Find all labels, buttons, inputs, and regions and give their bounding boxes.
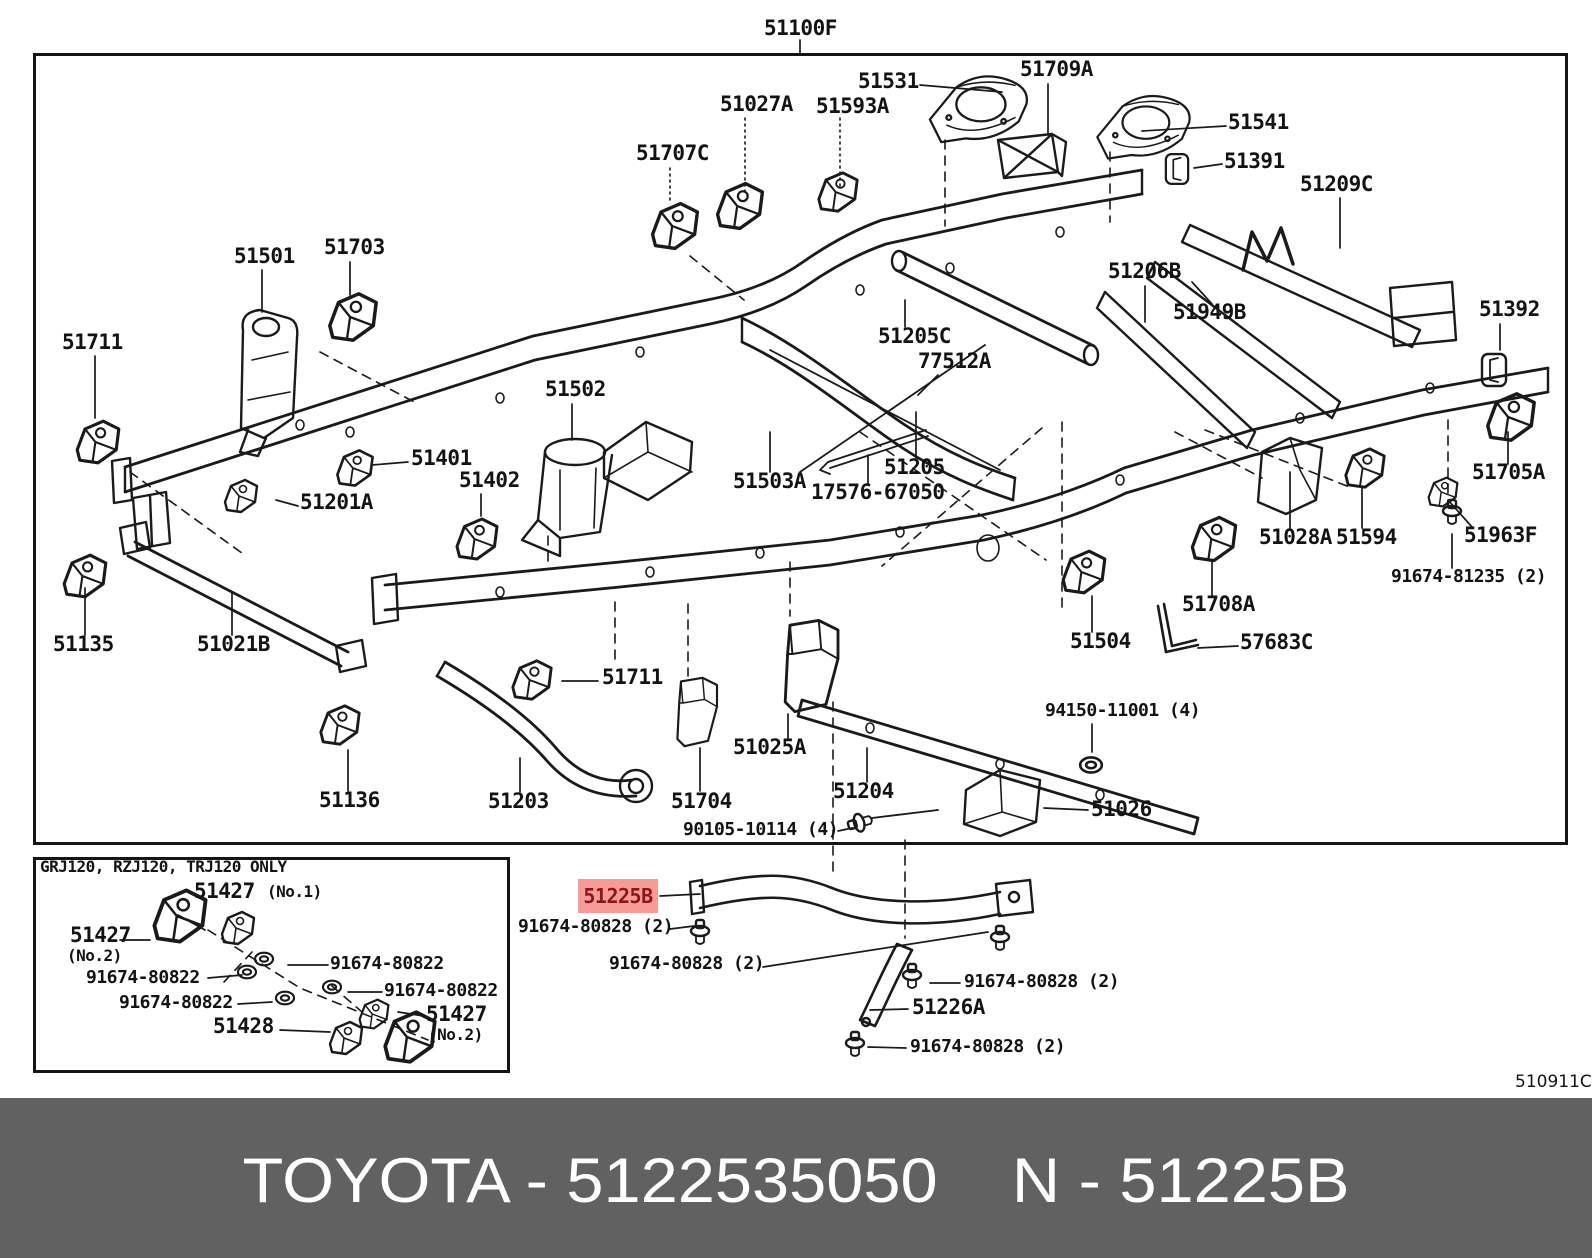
part-label-51136: 51136	[319, 790, 380, 811]
part-label-77512a: 77512A	[918, 351, 991, 372]
part-label-90105-10114-4: 90105-10114 (4)	[683, 821, 838, 839]
part-label-51504: 51504	[1070, 631, 1131, 652]
part-label-17576-67050: 17576-67050	[811, 482, 945, 503]
part-label-51705a: 51705A	[1472, 462, 1545, 483]
part-label-51593a: 51593A	[816, 96, 889, 117]
part-label-51402: 51402	[459, 470, 520, 491]
part-label-51703: 51703	[324, 237, 385, 258]
part-label-51021b: 51021B	[197, 634, 270, 655]
part-label-51027a: 51027A	[720, 94, 793, 115]
part-label-91674-80822: 91674-80822	[119, 994, 233, 1012]
part-label-51428: 51428	[213, 1016, 274, 1037]
part-label-51209c: 51209C	[1300, 174, 1373, 195]
part-label-51100f: 51100F	[764, 18, 837, 39]
part-label-51709a: 51709A	[1020, 59, 1093, 80]
part-label-51401: 51401	[411, 448, 472, 469]
highlighted-part-label: 51225B	[578, 879, 658, 913]
part-label-51427: 51427	[426, 1004, 487, 1025]
part-label-51205c: 51205C	[878, 326, 951, 347]
part-label-51594: 51594	[1336, 527, 1397, 548]
part-label-no-2: (No.2)	[67, 948, 122, 964]
footer-banner: TOYOTA - 5122535050 N - 51225B	[0, 1098, 1592, 1258]
part-label-91674-80822: 91674-80822	[330, 955, 444, 973]
part-label-no-2: (No.2)	[428, 1027, 483, 1043]
part-label-51203: 51203	[488, 791, 549, 812]
part-label-57683c: 57683C	[1240, 632, 1313, 653]
part-label-510911c: 510911C	[1515, 1074, 1592, 1091]
part-label-51531: 51531	[858, 71, 919, 92]
part-label-91674-80828-2: 91674-80828 (2)	[518, 918, 673, 936]
parts-diagram-page: 51225B 51100F5153151709A51027A51593A5170…	[0, 0, 1592, 1258]
part-label-51963f: 51963F	[1464, 525, 1537, 546]
part-label-51501: 51501	[234, 246, 295, 267]
part-label-51026: 51026	[1091, 799, 1152, 820]
part-label-51707c: 51707C	[636, 143, 709, 164]
part-label-91674-80822: 91674-80822	[384, 982, 498, 1000]
part-label-51711: 51711	[62, 332, 123, 353]
part-label-51949b: 51949B	[1173, 302, 1246, 323]
part-label-91674-80828-2: 91674-80828 (2)	[910, 1038, 1065, 1056]
banner-text: TOYOTA - 5122535050 N - 51225B	[243, 1146, 1350, 1216]
part-label-grj120-rzj120-trj120-only: GRJ120, RZJ120, TRJ120 ONLY	[40, 859, 287, 875]
part-label-51206b: 51206B	[1108, 261, 1181, 282]
part-label-91674-80828-2: 91674-80828 (2)	[609, 955, 764, 973]
part-label-51427: 51427	[70, 925, 131, 946]
part-label-91674-80828-2: 91674-80828 (2)	[964, 973, 1119, 991]
part-label-51541: 51541	[1228, 112, 1289, 133]
part-label-94150-11001-4: 94150-11001 (4)	[1045, 702, 1200, 720]
part-label-91674-80822: 91674-80822	[86, 969, 200, 987]
part-label-51502: 51502	[545, 379, 606, 400]
part-label-51025a: 51025A	[733, 737, 806, 758]
part-label-51135: 51135	[53, 634, 114, 655]
part-label-91674-81235-2: 91674-81235 (2)	[1391, 568, 1546, 586]
part-label-51503a: 51503A	[733, 471, 806, 492]
part-label-51708a: 51708A	[1182, 594, 1255, 615]
part-label-51704: 51704	[671, 791, 732, 812]
part-label-51201a: 51201A	[300, 492, 373, 513]
part-label-51226a: 51226A	[912, 997, 985, 1018]
part-label-51204: 51204	[833, 781, 894, 802]
part-label-51205: 51205	[884, 457, 945, 478]
part-label-51391: 51391	[1224, 151, 1285, 172]
part-label-no-1: (No.1)	[267, 884, 322, 900]
part-label-51711: 51711	[602, 667, 663, 688]
part-label-51427: 51427	[194, 881, 255, 902]
part-label-51392: 51392	[1479, 299, 1540, 320]
part-label-51028a: 51028A	[1259, 527, 1332, 548]
